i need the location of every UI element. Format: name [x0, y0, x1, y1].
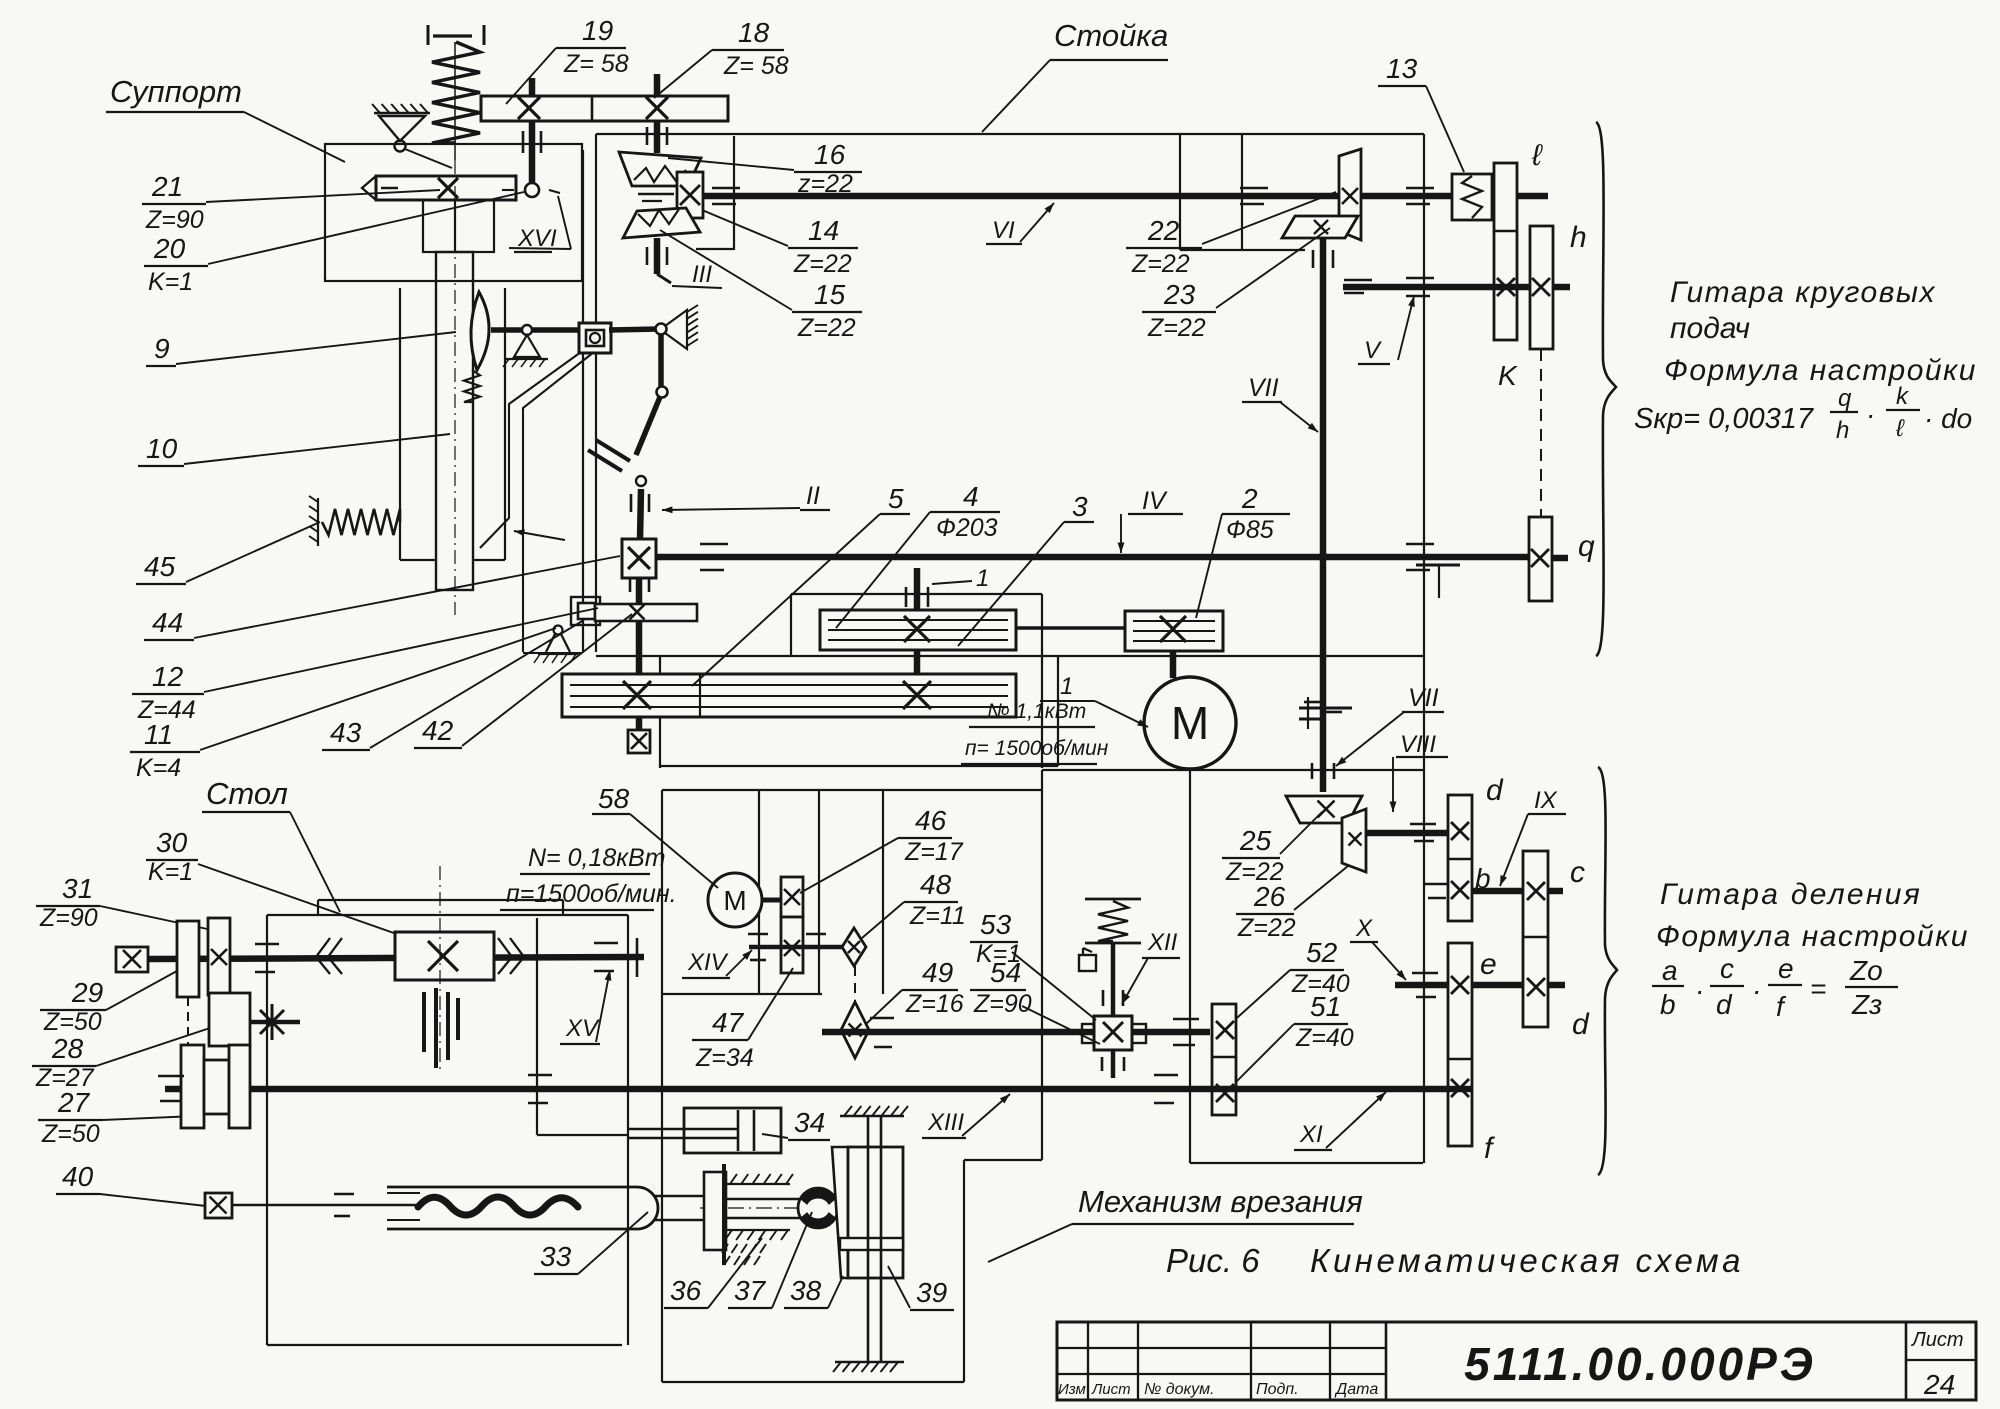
svg-text:Стол: Стол — [206, 776, 288, 811]
svg-text:XV: XV — [565, 1015, 600, 1042]
svg-text:2: 2 — [1241, 483, 1258, 514]
svg-text:40: 40 — [62, 1161, 94, 1192]
svg-text:14: 14 — [808, 215, 839, 246]
svg-text:Z=40: Z=40 — [1295, 1024, 1354, 1052]
svg-text:·: · — [1695, 975, 1704, 1006]
svg-text:13: 13 — [1386, 53, 1418, 84]
svg-text:11: 11 — [144, 719, 173, 750]
svg-text:26: 26 — [1253, 881, 1286, 912]
svg-text:·: · — [1866, 399, 1875, 430]
svg-text:M: M — [723, 885, 746, 916]
svg-text:37: 37 — [734, 1275, 767, 1306]
svg-text:ℓ: ℓ — [1531, 139, 1543, 172]
svg-text:Стойка: Стойка — [1054, 18, 1168, 53]
svg-text:VI: VI — [992, 217, 1015, 244]
svg-text:Z=90: Z=90 — [145, 206, 204, 234]
svg-text:Z=34: Z=34 — [695, 1044, 754, 1072]
svg-text:Рис. 6: Рис. 6 — [1166, 1242, 1260, 1279]
svg-text:Z=17: Z=17 — [904, 838, 964, 866]
svg-text:e: e — [1778, 953, 1794, 984]
svg-text:K=1: K=1 — [148, 268, 193, 296]
svg-text:47: 47 — [712, 1007, 745, 1038]
svg-text:№ докум.: № докум. — [1144, 1381, 1214, 1398]
svg-text:Ф85: Ф85 — [1226, 516, 1274, 544]
svg-text:c: c — [1570, 856, 1585, 889]
svg-text:28: 28 — [51, 1033, 84, 1064]
svg-text:IV: IV — [1142, 487, 1168, 515]
svg-text:d: d — [1486, 774, 1504, 807]
svg-text:ℓ: ℓ — [1895, 415, 1905, 442]
svg-text:1: 1 — [976, 565, 989, 592]
svg-text:49: 49 — [922, 957, 953, 988]
svg-text:Z= 58: Z= 58 — [563, 50, 629, 78]
svg-text:43: 43 — [330, 717, 362, 748]
svg-text:Подп.: Подп. — [1256, 1381, 1299, 1398]
svg-text:Z= 58: Z= 58 — [723, 52, 789, 80]
svg-text:21: 21 — [151, 171, 183, 202]
svg-text:III: III — [692, 261, 712, 288]
svg-text:Z=22: Z=22 — [1237, 914, 1296, 942]
svg-text:c: c — [1720, 953, 1734, 984]
svg-text:h: h — [1836, 417, 1849, 444]
svg-text:Суппорт: Суппорт — [110, 74, 242, 109]
svg-text:34: 34 — [794, 1107, 825, 1138]
svg-text:Z=22: Z=22 — [797, 314, 856, 342]
svg-text:=: = — [1810, 973, 1826, 1004]
svg-text:VII: VII — [1248, 374, 1279, 402]
svg-text:d: d — [1572, 1008, 1590, 1041]
svg-text:f: f — [1484, 1132, 1495, 1165]
svg-text:M: M — [1171, 697, 1209, 749]
svg-text:Кинематическая схема: Кинематическая схема — [1310, 1242, 1744, 1279]
svg-text:27: 27 — [57, 1087, 91, 1118]
svg-text:k: k — [1896, 383, 1910, 410]
svg-text:K: K — [1498, 360, 1518, 391]
svg-text:31: 31 — [62, 873, 93, 904]
svg-text:№ 1,1кВт: № 1,1кВт — [987, 700, 1086, 723]
svg-text:K=4: K=4 — [136, 754, 181, 782]
svg-text:Z=50: Z=50 — [41, 1120, 100, 1148]
svg-text:33: 33 — [540, 1241, 572, 1272]
svg-text:4: 4 — [963, 481, 979, 512]
svg-text:53: 53 — [980, 909, 1012, 940]
svg-text:b: b — [1660, 989, 1676, 1020]
svg-text:X: X — [1355, 915, 1373, 942]
svg-text:Z=16: Z=16 — [905, 990, 964, 1018]
svg-text:N= 0,18кВт: N= 0,18кВт — [528, 844, 666, 872]
svg-text:XIV: XIV — [687, 949, 729, 976]
svg-text:XI: XI — [1299, 1121, 1323, 1148]
svg-text:d: d — [1716, 989, 1733, 1020]
svg-text:5111.00.000РЭ: 5111.00.000РЭ — [1464, 1338, 1816, 1390]
svg-text:Гитара круговых: Гитара круговых — [1670, 276, 1936, 309]
svg-text:V: V — [1364, 337, 1382, 364]
svg-text:Z=22: Z=22 — [1147, 314, 1206, 342]
svg-text:II: II — [806, 482, 820, 510]
svg-text:24: 24 — [1923, 1369, 1955, 1400]
svg-text:K=1: K=1 — [148, 858, 193, 886]
svg-text:48: 48 — [920, 869, 952, 900]
svg-text:18: 18 — [738, 17, 770, 48]
svg-text:3: 3 — [1072, 491, 1088, 522]
svg-text:9: 9 — [154, 333, 170, 364]
svg-text:Лист: Лист — [1091, 1381, 1131, 1398]
svg-text:q: q — [1578, 530, 1595, 563]
svg-text:Гитара деления: Гитара деления — [1660, 878, 1922, 911]
svg-text:п=1500об/мин.: п=1500об/мин. — [506, 880, 677, 908]
svg-text:VIII: VIII — [1400, 731, 1436, 758]
svg-text:Z=90: Z=90 — [973, 990, 1032, 1018]
svg-text:Z=50: Z=50 — [43, 1008, 102, 1036]
svg-text:Лист: Лист — [1910, 1329, 1964, 1351]
svg-text:16: 16 — [814, 139, 846, 170]
svg-text:Формула настройки: Формула настройки — [1664, 354, 1977, 387]
svg-text:Изм: Изм — [1058, 1381, 1086, 1398]
svg-text:IX: IX — [1534, 787, 1558, 814]
svg-text:54: 54 — [990, 957, 1021, 988]
svg-text:Ф203: Ф203 — [936, 514, 998, 542]
svg-text:· do: · do — [1924, 403, 1972, 434]
svg-text:e: e — [1480, 948, 1497, 981]
svg-text:Sкр= 0,00317: Sкр= 0,00317 — [1634, 403, 1815, 435]
svg-text:20: 20 — [153, 233, 186, 264]
svg-text:36: 36 — [670, 1275, 702, 1306]
svg-text:30: 30 — [156, 827, 188, 858]
svg-text:42: 42 — [422, 715, 454, 746]
svg-text:f: f — [1776, 991, 1787, 1022]
svg-text:h: h — [1570, 221, 1587, 254]
svg-text:25: 25 — [1239, 825, 1272, 856]
svg-text:Z=11: Z=11 — [909, 902, 966, 930]
svg-text:Механизм врезания: Механизм врезания — [1078, 1184, 1363, 1219]
svg-text:Z=90: Z=90 — [39, 904, 98, 932]
svg-text:51: 51 — [1310, 991, 1341, 1022]
svg-text:46: 46 — [915, 805, 947, 836]
svg-text:10: 10 — [146, 433, 178, 464]
svg-text:5: 5 — [888, 483, 904, 514]
svg-text:Zз: Zз — [1851, 989, 1882, 1020]
svg-text:Z=22: Z=22 — [793, 250, 852, 278]
svg-text:Дата: Дата — [1334, 1381, 1378, 1398]
svg-text:п= 1500об/мин: п= 1500об/мин — [965, 737, 1109, 760]
svg-text:q: q — [1838, 385, 1852, 412]
svg-text:38: 38 — [790, 1275, 822, 1306]
svg-text:Z=22: Z=22 — [1131, 250, 1190, 278]
svg-text:19: 19 — [582, 15, 613, 46]
svg-text:44: 44 — [152, 607, 183, 638]
svg-text:Zо: Zо — [1849, 955, 1883, 986]
svg-text:52: 52 — [1306, 937, 1338, 968]
svg-text:12: 12 — [152, 661, 184, 692]
svg-text:29: 29 — [71, 977, 103, 1008]
svg-text:XIII: XIII — [927, 1109, 964, 1136]
svg-text:b: b — [1475, 863, 1491, 894]
svg-text:22: 22 — [1147, 215, 1180, 246]
svg-text:VII: VII — [1408, 684, 1439, 712]
svg-text:39: 39 — [916, 1277, 947, 1308]
svg-text:·: · — [1752, 975, 1761, 1006]
svg-text:a: a — [1662, 955, 1678, 986]
svg-text:z=22: z=22 — [797, 170, 853, 198]
svg-text:подач: подач — [1670, 312, 1750, 345]
svg-text:23: 23 — [1163, 279, 1196, 310]
svg-text:XII: XII — [1147, 929, 1178, 956]
svg-text:15: 15 — [814, 279, 846, 310]
svg-text:1: 1 — [1060, 673, 1073, 700]
svg-text:Формула настройки: Формула настройки — [1656, 920, 1969, 953]
svg-text:58: 58 — [598, 783, 630, 814]
svg-text:45: 45 — [144, 551, 176, 582]
